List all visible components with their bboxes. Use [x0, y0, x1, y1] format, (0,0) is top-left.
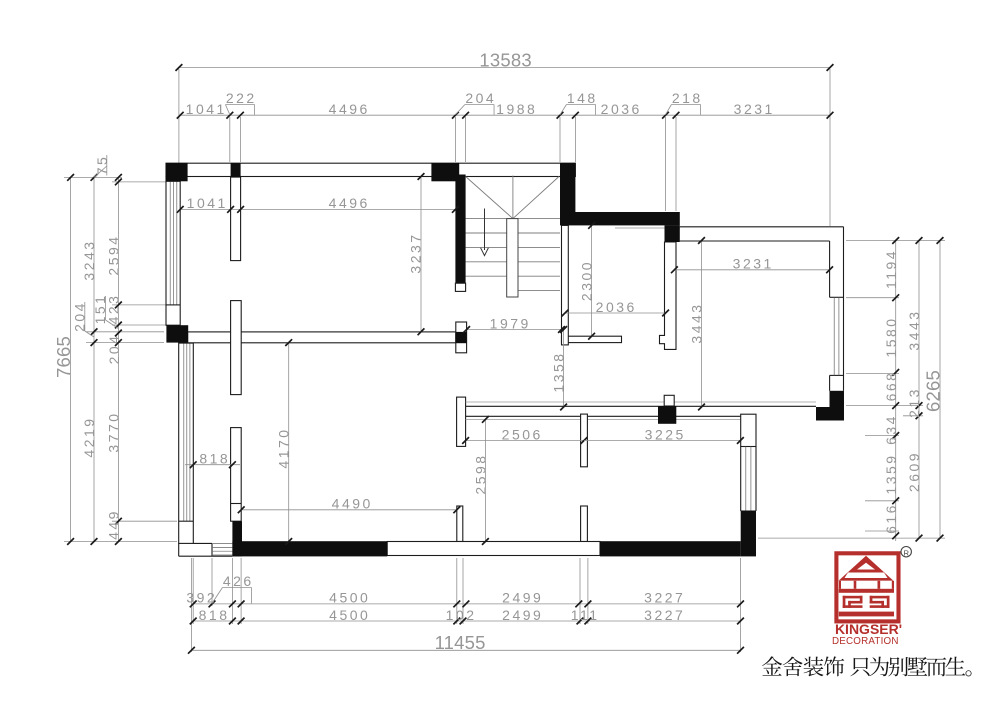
- svg-text:4500: 4500: [329, 590, 370, 606]
- svg-text:3225: 3225: [645, 426, 686, 442]
- svg-text:2036: 2036: [601, 101, 642, 117]
- svg-text:204: 204: [106, 334, 122, 365]
- svg-text:4170: 4170: [276, 427, 292, 468]
- svg-text:2506: 2506: [502, 426, 543, 442]
- svg-text:423: 423: [106, 294, 122, 325]
- svg-text:1359: 1359: [883, 453, 899, 494]
- svg-text:426: 426: [223, 573, 254, 589]
- svg-text:218: 218: [672, 90, 703, 106]
- svg-text:KINGSER': KINGSER': [835, 621, 902, 637]
- svg-text:1194: 1194: [883, 249, 899, 289]
- svg-text:3443: 3443: [688, 302, 704, 343]
- svg-text:3243: 3243: [81, 239, 97, 280]
- svg-text:DECORATION: DECORATION: [832, 636, 899, 647]
- svg-text:1358: 1358: [550, 351, 566, 392]
- svg-text:2300: 2300: [578, 260, 594, 301]
- svg-text:634: 634: [883, 414, 899, 445]
- svg-text:2499: 2499: [502, 607, 543, 623]
- svg-text:3443: 3443: [906, 309, 922, 350]
- svg-text:4496: 4496: [329, 101, 370, 117]
- svg-text:2499: 2499: [502, 590, 543, 606]
- svg-text:213: 213: [906, 387, 922, 418]
- svg-text:4490: 4490: [332, 496, 373, 512]
- svg-text:3237: 3237: [408, 232, 424, 273]
- svg-text:1979: 1979: [490, 315, 531, 331]
- svg-text:3231: 3231: [734, 101, 775, 117]
- svg-text:2598: 2598: [472, 453, 488, 494]
- svg-text:616: 616: [883, 503, 899, 534]
- svg-text:449: 449: [105, 509, 121, 540]
- svg-text:102: 102: [446, 607, 477, 623]
- svg-text:7665: 7665: [53, 336, 74, 378]
- svg-text:75: 75: [94, 155, 110, 176]
- svg-text:1580: 1580: [883, 316, 899, 357]
- svg-text:1041: 1041: [187, 195, 228, 211]
- svg-text:818: 818: [199, 451, 230, 467]
- svg-text:3227: 3227: [644, 590, 685, 606]
- svg-text:4496: 4496: [329, 195, 370, 211]
- svg-text:1988: 1988: [496, 101, 537, 117]
- svg-text:6265: 6265: [923, 370, 944, 412]
- svg-text:222: 222: [226, 90, 257, 106]
- svg-text:2609: 2609: [906, 451, 922, 492]
- svg-text:392: 392: [186, 590, 217, 606]
- svg-text:3770: 3770: [105, 411, 121, 452]
- svg-text:111: 111: [571, 607, 600, 623]
- svg-text:818: 818: [199, 607, 230, 623]
- svg-text:13583: 13583: [479, 49, 531, 70]
- svg-text:1041: 1041: [186, 101, 227, 117]
- svg-text:668: 668: [883, 371, 899, 402]
- svg-text:3227: 3227: [644, 607, 685, 623]
- svg-text:3231: 3231: [733, 256, 774, 272]
- svg-text:2594: 2594: [105, 234, 121, 275]
- svg-text:4219: 4219: [81, 416, 97, 457]
- svg-text:4500: 4500: [329, 607, 370, 623]
- svg-text:204: 204: [465, 90, 496, 106]
- svg-text:2036: 2036: [596, 299, 637, 315]
- svg-text:R: R: [903, 548, 909, 557]
- svg-text:11455: 11455: [435, 632, 486, 653]
- svg-text:148: 148: [567, 90, 598, 106]
